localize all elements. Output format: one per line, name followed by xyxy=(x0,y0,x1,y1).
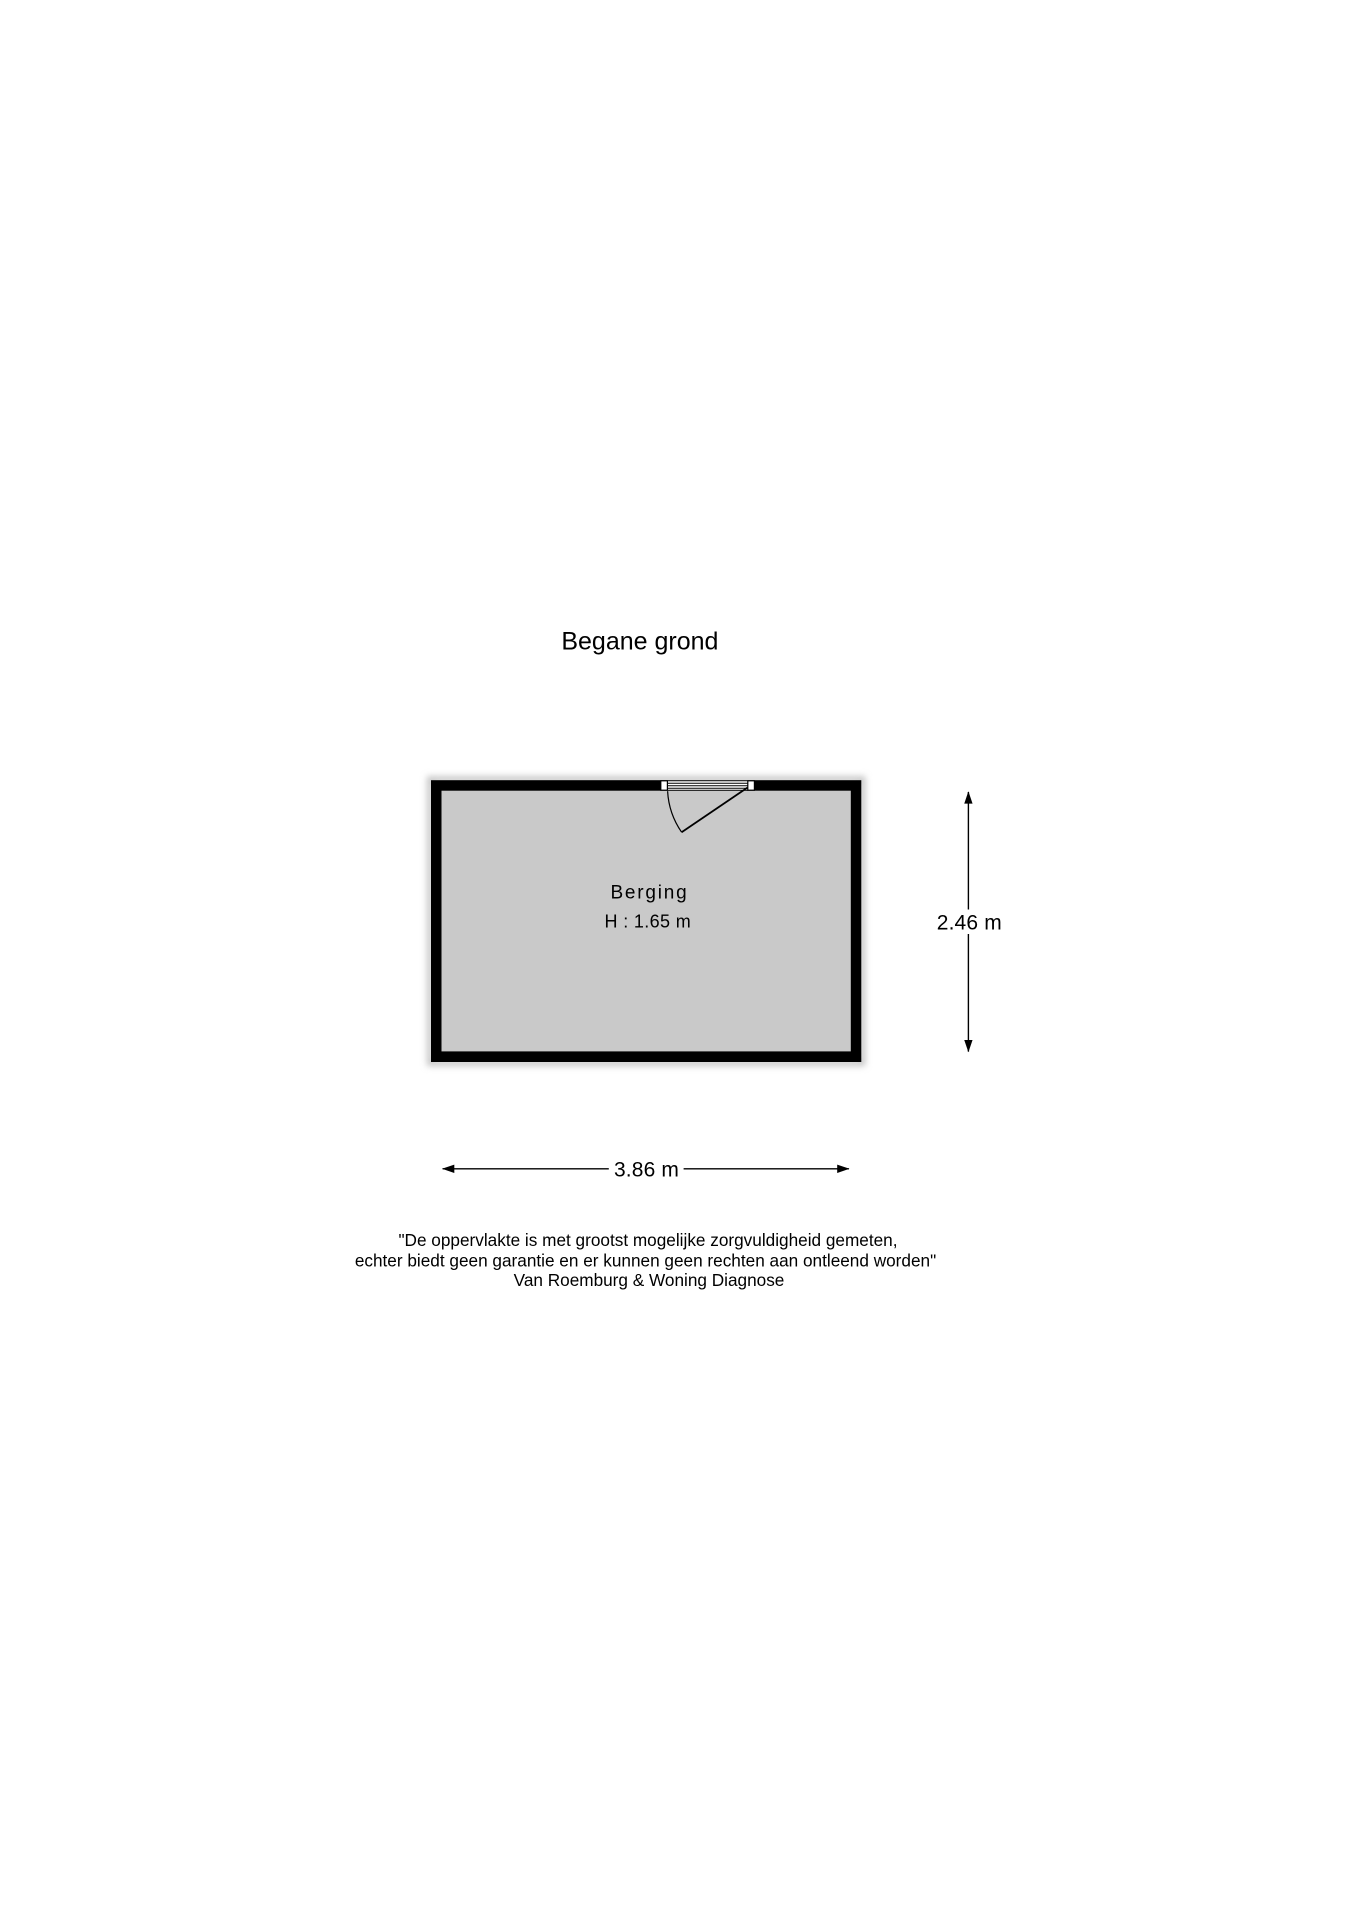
svg-text:2.46 m: 2.46 m xyxy=(937,911,1002,934)
svg-text:echter biedt geen garantie en: echter biedt geen garantie en er kunnen … xyxy=(355,1250,936,1270)
svg-text:3.86 m: 3.86 m xyxy=(614,1158,679,1181)
svg-text:"De oppervlakte is met grootst: "De oppervlakte is met grootst mogelijke… xyxy=(398,1230,897,1250)
svg-text:Begane grond: Begane grond xyxy=(561,628,718,656)
svg-text:Berging: Berging xyxy=(610,882,688,903)
svg-text:H : 1.65 m: H : 1.65 m xyxy=(605,911,692,931)
svg-text:Van Roemburg & Woning Diagnose: Van Roemburg & Woning Diagnose xyxy=(514,1270,785,1290)
